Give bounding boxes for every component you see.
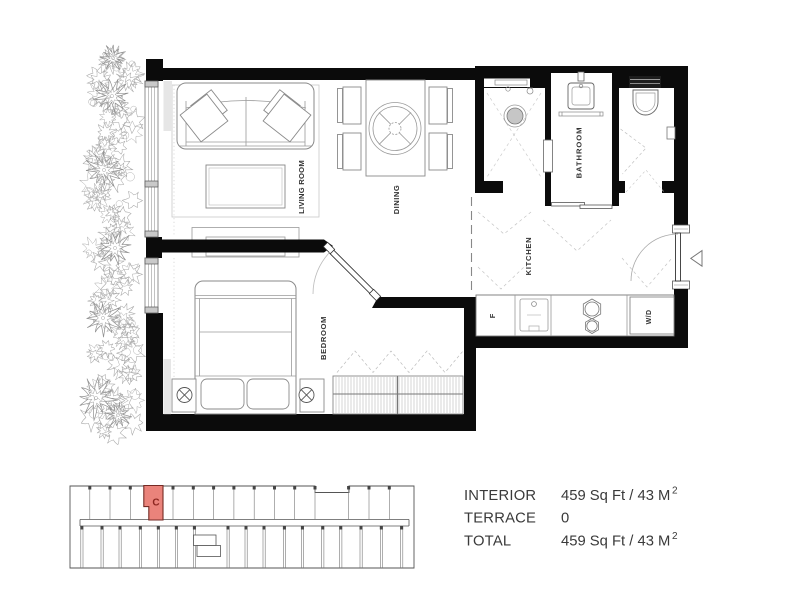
svg-text:INTERIOR: INTERIOR xyxy=(464,488,536,504)
svg-text:459 Sq Ft / 43 M: 459 Sq Ft / 43 M xyxy=(561,488,670,504)
svg-text:2: 2 xyxy=(672,486,678,497)
svg-text:BATHROOM: BATHROOM xyxy=(575,127,584,179)
svg-text:BEDROOM: BEDROOM xyxy=(319,316,328,360)
svg-text:0: 0 xyxy=(561,511,569,527)
svg-text:DINING: DINING xyxy=(392,185,401,215)
svg-text:459 Sq Ft / 43 M: 459 Sq Ft / 43 M xyxy=(561,534,670,550)
svg-text:TERRACE: TERRACE xyxy=(464,511,536,527)
svg-text:W/D: W/D xyxy=(646,310,653,325)
svg-text:C: C xyxy=(152,498,159,509)
svg-text:F: F xyxy=(488,313,497,318)
svg-text:KITCHEN: KITCHEN xyxy=(524,237,533,276)
svg-text:LIVING ROOM: LIVING ROOM xyxy=(297,160,306,214)
svg-text:2: 2 xyxy=(672,531,678,542)
svg-text:TOTAL: TOTAL xyxy=(464,534,511,550)
